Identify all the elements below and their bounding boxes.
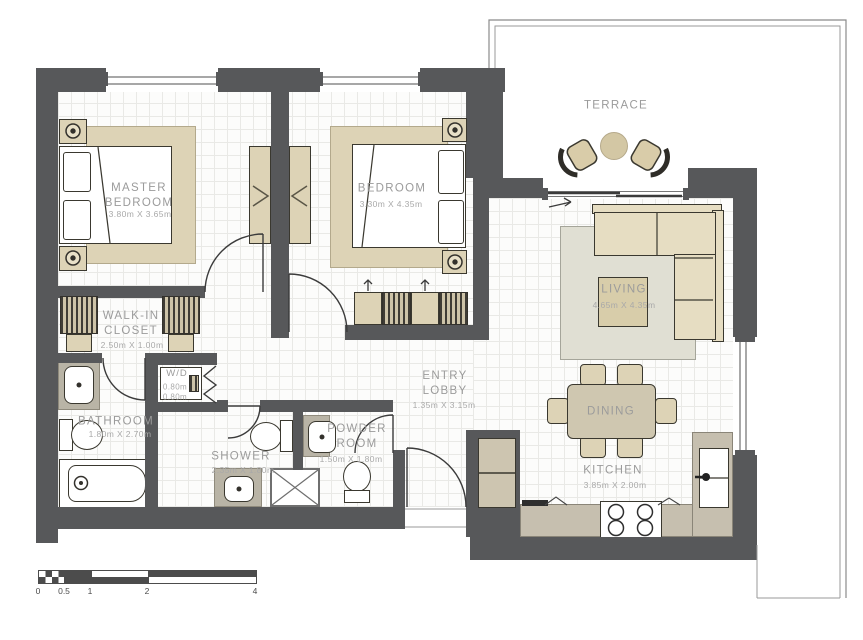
dining-chair	[580, 436, 606, 458]
master-bed-pillow	[63, 200, 91, 240]
wall-bedroom-south	[345, 325, 489, 340]
wall-wd-bottom	[145, 402, 217, 412]
master-nightstand	[59, 246, 87, 271]
wall-bottom-left	[36, 507, 405, 529]
label-living: LIVING	[601, 283, 647, 298]
scale-bar-segment	[91, 571, 148, 583]
wall-shower-north-a	[217, 400, 228, 412]
label-powder-room: POWDER ROOM	[317, 422, 397, 452]
bedroom-bed-pillow	[438, 200, 464, 244]
window-bedroom	[320, 68, 420, 92]
shower-toilet-bowl	[250, 422, 282, 451]
dining-chair	[547, 398, 569, 424]
dim-kitchen: 3.85m X 2.00m	[584, 480, 647, 490]
floor-plan: MASTER BEDROOM 3.80m X 3.65m BEDROOM 3.3…	[0, 0, 863, 640]
wall-powder-right	[393, 450, 405, 507]
dim-walk-in-closet: 2.50m X 1.00m	[101, 340, 164, 350]
bedroom-dresser	[382, 292, 411, 325]
scale-label-1: 1	[88, 586, 93, 596]
shower-stall	[270, 468, 320, 507]
bedroom-wardrobe	[289, 146, 311, 244]
wall-hall-living	[473, 198, 489, 340]
entry-threshold	[405, 507, 466, 529]
sofa-seat	[594, 212, 716, 256]
scale-label-4: 4	[253, 586, 258, 596]
bedroom-dresser	[411, 292, 439, 325]
terrace-chair	[628, 136, 672, 179]
powder-toilet-tank	[344, 490, 370, 503]
label-master-bedroom: MASTER BEDROOM	[92, 181, 187, 211]
wall-living-step	[473, 178, 543, 198]
dim-master-bedroom: 3.80m X 3.65m	[109, 209, 172, 219]
dim-entry-lobby: 1.35m X 3.15m	[413, 400, 476, 410]
label-washer-dryer: W/D	[166, 368, 187, 380]
dim-bathroom: 1.80m X 2.70m	[89, 429, 152, 439]
wall-wd-top	[145, 353, 217, 365]
terrace-table	[601, 133, 628, 160]
wall-terrace-right-chunk	[688, 168, 757, 198]
label-bedroom: BEDROOM	[358, 182, 427, 197]
bathtub-inner	[68, 465, 146, 502]
label-entry-lobby: ENTRY LOBBY	[410, 369, 480, 399]
shower-sink	[224, 476, 254, 502]
label-kitchen: KITCHEN	[583, 464, 643, 479]
wall-kitchen-bottom	[470, 537, 757, 560]
bedroom-nightstand	[442, 118, 467, 142]
wall-bedroom-divider	[271, 92, 289, 338]
window-master	[106, 68, 218, 92]
kitchen-sink	[699, 448, 729, 508]
dining-chair	[617, 364, 643, 386]
scale-label-2: 2	[145, 586, 150, 596]
dim-washer-dryer-w: 0.80m	[163, 383, 187, 392]
terrace-chair	[555, 136, 599, 179]
wall-bedroom-right	[466, 68, 503, 178]
scale-bar-segment	[39, 571, 65, 583]
master-wardrobe	[249, 146, 271, 244]
label-walk-in-closet: WALK-IN CLOSET	[84, 309, 179, 339]
stove	[600, 501, 662, 539]
bedroom-bed-pillow	[438, 150, 464, 194]
bedroom-dresser	[439, 292, 468, 325]
dim-powder-room: 1.50m X 1.80m	[320, 454, 383, 464]
bedroom-nightstand	[442, 250, 467, 274]
scale-bar-segment	[65, 571, 91, 583]
fridge-unit	[478, 438, 516, 508]
sliding-door-terrace	[543, 189, 689, 199]
scale-bar-segment	[148, 571, 256, 583]
label-dining: DINING	[587, 405, 635, 420]
wall-shower-powder	[293, 400, 303, 470]
sofa-seat	[674, 254, 716, 340]
shower-toilet-tank	[280, 420, 293, 452]
dim-washer-dryer-d: 0.80m	[163, 393, 187, 402]
dim-living: 4.65m X 4.35m	[593, 300, 656, 310]
master-nightstand	[59, 119, 87, 144]
window-living	[733, 337, 757, 455]
scale-bar	[38, 570, 257, 584]
wall-left	[36, 68, 58, 543]
dining-chair	[580, 364, 606, 386]
bathroom-sink	[64, 366, 94, 404]
scale-label-0: 0	[36, 586, 41, 596]
label-bathroom: BATHROOM	[78, 415, 154, 430]
wall-living-right	[733, 198, 757, 338]
label-shower: SHOWER	[211, 450, 271, 465]
wall-closet-south	[58, 353, 102, 363]
dim-shower: 2.35m X 1.80m	[212, 465, 275, 475]
dim-bedroom: 3.30m X 4.35m	[360, 199, 423, 209]
dining-chair	[617, 436, 643, 458]
label-terrace: TERRACE	[584, 99, 648, 114]
wall-shower-north-b	[260, 400, 393, 412]
powder-toilet-bowl	[343, 461, 371, 492]
bedroom-dresser	[354, 292, 382, 325]
scale-label-05: 0.5	[58, 586, 70, 596]
dining-chair	[655, 398, 677, 424]
master-bed-pillow	[63, 152, 91, 192]
washer-dryer-icon	[189, 375, 199, 392]
